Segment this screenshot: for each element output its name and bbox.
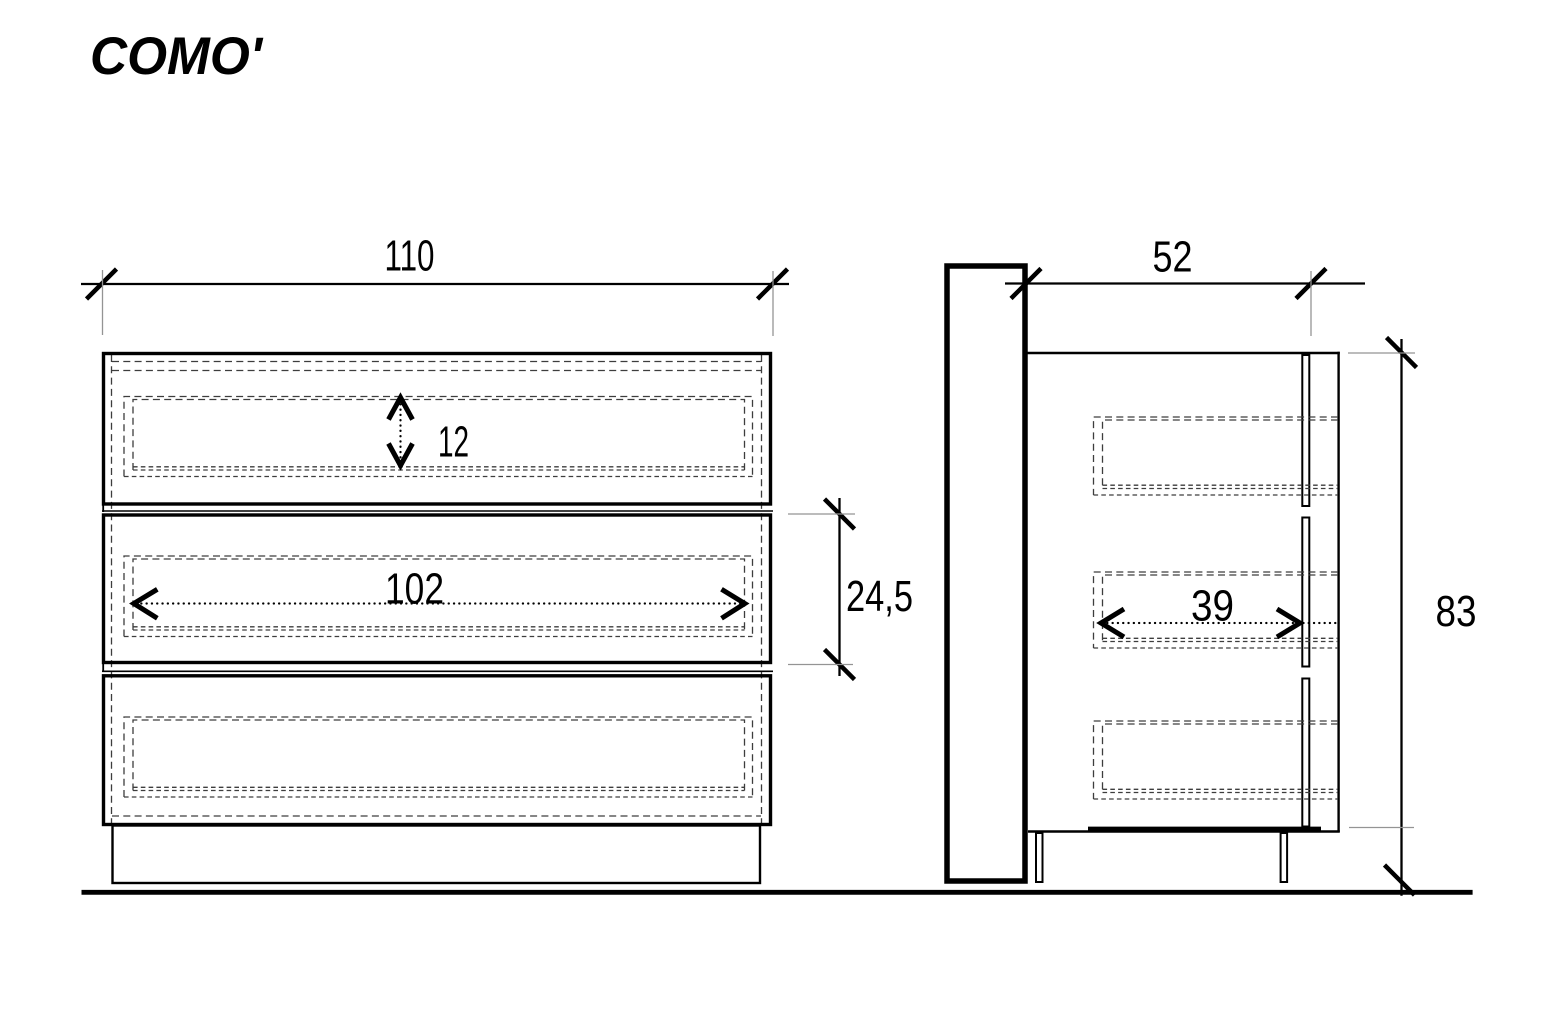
svg-text:110: 110 — [385, 232, 435, 281]
svg-text:24,5: 24,5 — [846, 572, 913, 621]
svg-text:102: 102 — [385, 565, 444, 614]
svg-text:COMO': COMO' — [90, 27, 264, 86]
svg-text:39: 39 — [1191, 582, 1234, 631]
svg-text:12: 12 — [438, 418, 469, 467]
svg-text:83: 83 — [1436, 587, 1477, 636]
svg-text:52: 52 — [1153, 233, 1193, 282]
